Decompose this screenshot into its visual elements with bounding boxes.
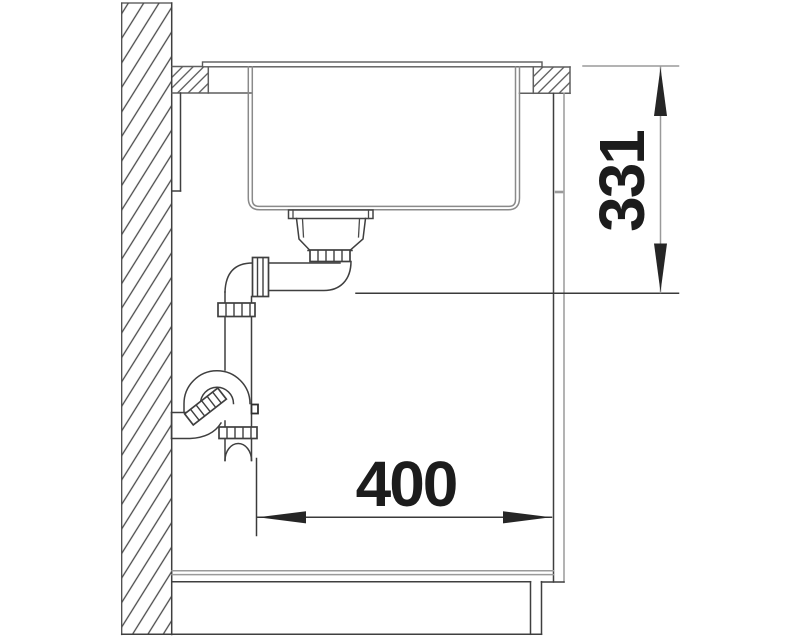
countertop-left [172,67,252,94]
diagram-canvas: 331 400 [0,0,800,640]
dimension-400: 400 [257,448,552,536]
pipe-coupling-nuts [185,258,269,439]
sink-rim [203,62,543,67]
sink-bowl [248,67,519,210]
countertop-right [520,67,571,93]
wall-section [122,3,172,635]
dimension-331-label: 331 [586,131,658,232]
sink-strainer [289,210,374,262]
cabinet-front-panel [542,93,565,582]
cabinet-back-rail [172,93,181,191]
pipe-clip [252,405,259,414]
cabinet-bottom-shelf [172,571,554,575]
dimension-331: 331 [356,66,679,293]
plinth-recess [172,582,542,635]
sink-installation-diagram: 331 400 [0,0,800,640]
dimension-400-label: 400 [356,448,457,520]
